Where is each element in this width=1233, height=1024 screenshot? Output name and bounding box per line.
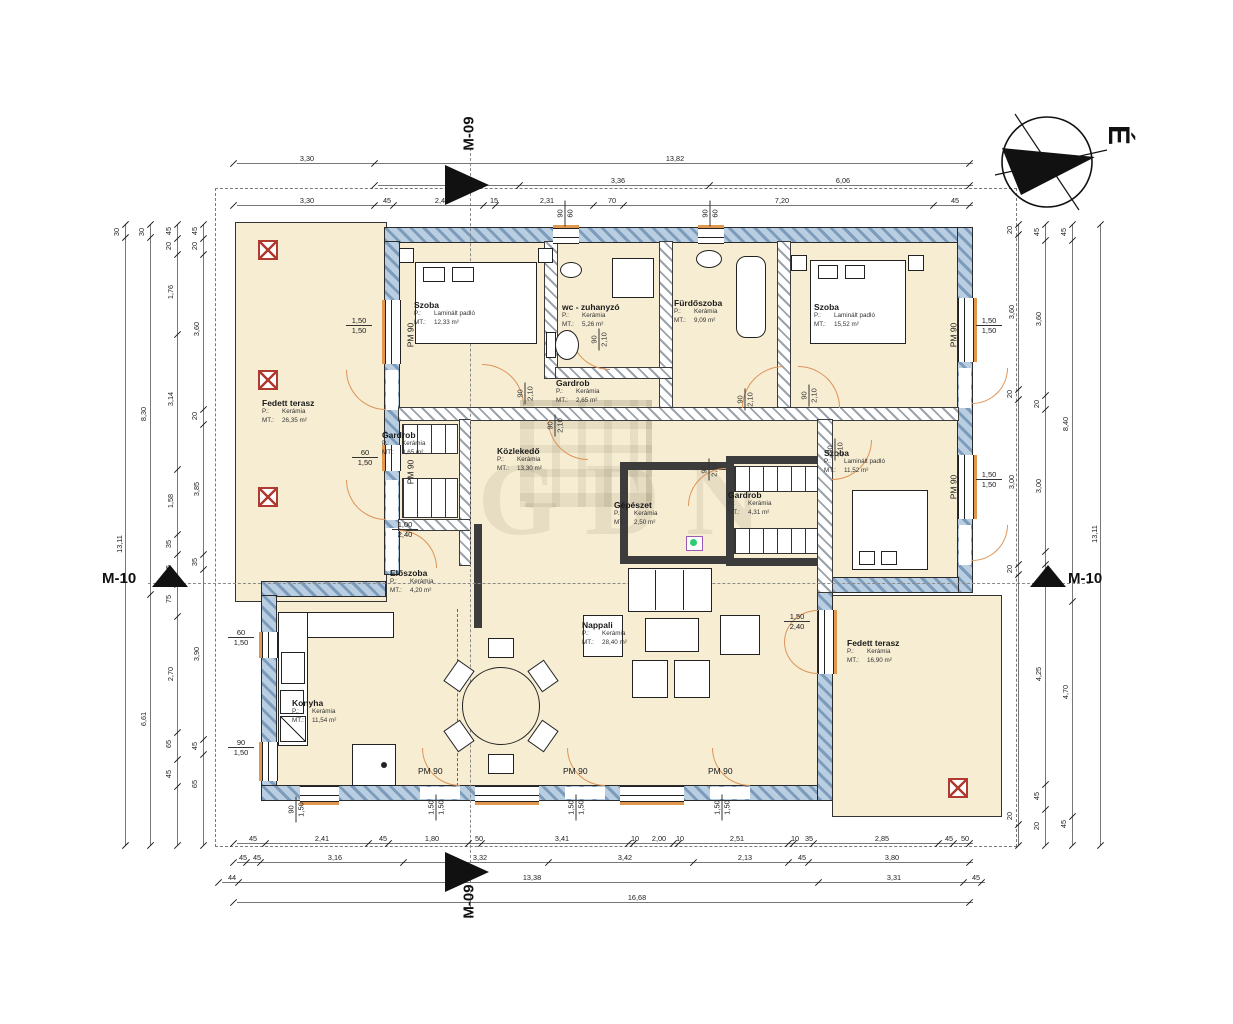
- column-symbol-1: [258, 240, 278, 260]
- dim-tick: [1042, 237, 1049, 244]
- dim-tick: [174, 783, 181, 790]
- window-north-1: [553, 228, 579, 244]
- dim-label: 3,31: [887, 873, 901, 882]
- dimension-chain: 4413,383,3145: [222, 882, 985, 883]
- door-gap-west-2: [386, 480, 398, 520]
- dim-label: 3,90: [192, 647, 201, 661]
- dim-label: 3,36: [611, 176, 625, 185]
- m09-label-top: M-09: [461, 116, 478, 150]
- dim-tick: [174, 613, 181, 620]
- dim-tick: [1069, 813, 1076, 820]
- dim-label: 45: [190, 227, 199, 235]
- dim-label: 20: [1032, 400, 1041, 408]
- dim-label: 16,68: [628, 893, 646, 902]
- room-label-konyha: Konyha P.:Kerámia MT.:11,54 m²: [292, 698, 388, 725]
- door-gap-south-1: [420, 787, 460, 799]
- dim-tick: [174, 466, 181, 473]
- dim-label: 45: [972, 873, 980, 882]
- m09-arrow-top: [443, 163, 491, 207]
- dim-tick: [174, 251, 181, 258]
- kitchen-stove: [352, 744, 396, 786]
- window-west-lower-1: [262, 632, 278, 658]
- dim-label: 3,60: [192, 322, 201, 336]
- dim-label: 45: [164, 770, 173, 778]
- equipment-icon: [686, 536, 703, 551]
- dim-label: 45: [1059, 820, 1068, 828]
- dim-tick: [1042, 392, 1049, 399]
- dim-tick: [200, 842, 207, 849]
- dim-tick: [1042, 842, 1049, 849]
- dim-tick: [200, 421, 207, 428]
- nightstand-ne-2: [908, 255, 924, 271]
- dim-label: 13,38: [523, 873, 541, 882]
- washbasin-wc: [560, 262, 582, 278]
- bed-ne-pillow-2: [845, 265, 865, 279]
- dim-label: 4,70: [1061, 685, 1070, 699]
- nightstand-nw-1: [399, 248, 414, 263]
- pouf-1: [632, 660, 668, 698]
- column-symbol-2: [258, 370, 278, 390]
- dim-tick: [257, 859, 264, 866]
- dim-tick: [230, 859, 237, 866]
- dim-label: 1,58: [166, 494, 175, 508]
- dimension-chain: 203,60203,002020: [1018, 224, 1019, 845]
- toilet-bowl: [555, 330, 579, 360]
- dim-label: 45: [1032, 228, 1041, 236]
- dim-tick: [174, 221, 181, 228]
- dimension-chain: 3,3013,82: [237, 163, 973, 164]
- dimension-chain: 3013,11: [125, 224, 126, 845]
- dim-label: 45: [239, 853, 247, 862]
- dim-label: 65: [164, 740, 173, 748]
- m10-label-right: M-10: [1068, 570, 1102, 587]
- dim-label: 35: [164, 540, 173, 548]
- dim-tick: [1069, 598, 1076, 605]
- dim-tick: [978, 879, 985, 886]
- room-label-terrace-right: Fedett terasz P.:Kerámia MT.:16,90 m²: [847, 638, 943, 665]
- dim-label: 65: [190, 780, 199, 788]
- room-label-nappali: Nappali P.:Kerámia MT.:28,40 m²: [582, 620, 642, 647]
- dimension-chain: 308,306,61: [150, 224, 151, 845]
- dim-tick: [1042, 548, 1049, 555]
- nightstand-nw-2: [538, 248, 553, 263]
- dining-chair-1: [488, 638, 514, 658]
- room-label-gepeszet: Gépészet P.:Kerámia MT.:2,50 m²: [614, 500, 710, 527]
- dim-tick: [1069, 237, 1076, 244]
- dim-label: 45: [798, 853, 806, 862]
- nappali-terrace-door: [818, 610, 834, 674]
- dim-label: 20: [1032, 822, 1041, 830]
- dim-label: 45: [253, 853, 261, 862]
- room-label-szoba-ne: Szoba P.:Laminált padló MT.:15,52 m²: [814, 302, 910, 329]
- dimension-chain: 453,60203,004,254520: [1045, 224, 1046, 845]
- shower: [612, 258, 654, 298]
- nightstand-ne-1: [791, 255, 807, 271]
- dim-tick: [230, 160, 237, 167]
- room-label-wc: wc - zuhanyzó P.:Kerámia MT.:5,26 m²: [562, 302, 658, 329]
- dim-label: 20: [164, 242, 173, 250]
- entry-door-gap: [386, 528, 398, 571]
- north-label: É: [1101, 125, 1135, 145]
- m10-arrow-left: [150, 563, 190, 589]
- dimension-chain: 45453,163,323,422,13453,80: [237, 862, 973, 863]
- dim-tick: [966, 160, 973, 167]
- room-label-gardrob-left: Gardrob P.:Kerámia MT.:3,65 m²: [382, 430, 478, 457]
- room-label-terrace-left: Fedett terasz P.:Kerámia MT.:26,35 m²: [262, 398, 358, 425]
- dim-tick: [122, 234, 129, 241]
- sofa-divider-2: [683, 570, 684, 610]
- room-label-kozlekedo: Közlekedő P.:Kerámia MT.:13,30 m²: [497, 446, 593, 473]
- door-gap-south-3: [710, 787, 750, 799]
- door-gap-east-1: [959, 368, 971, 408]
- m10-arrow-right: [1028, 563, 1068, 589]
- bed-se-pillow-2: [881, 551, 897, 565]
- window-south-3: [620, 786, 684, 802]
- m10-label-left: M-10: [102, 570, 136, 587]
- dim-label: 45: [1059, 228, 1068, 236]
- dim-tick: [690, 859, 697, 866]
- dimension-chain: 45201,763,141,583565752,706545: [177, 224, 178, 845]
- dim-tick: [215, 879, 222, 886]
- room-label-gardrob-top: Gardrob P.:Kerámia MT.:2,65 m²: [556, 378, 652, 405]
- dim-label: 3,14: [166, 392, 175, 406]
- dim-label: 3,80: [885, 853, 899, 862]
- dim-tick: [1042, 781, 1049, 788]
- dim-label: 8,30: [139, 407, 148, 421]
- dim-label: 20: [190, 242, 199, 250]
- dim-label: 3,85: [192, 482, 201, 496]
- dim-tick: [805, 859, 812, 866]
- dimension-chain: 16,68: [237, 902, 973, 903]
- dim-tick: [200, 406, 207, 413]
- dim-label: 3,00: [1034, 479, 1043, 493]
- dim-tick: [174, 842, 181, 849]
- dim-tick: [545, 859, 552, 866]
- dim-tick: [174, 551, 181, 558]
- dim-tick: [960, 879, 967, 886]
- dim-tick: [200, 736, 207, 743]
- dim-label: 45: [190, 742, 199, 750]
- bed-ne-pillow-1: [818, 265, 838, 279]
- room-label-eloszoba: Előszoba P.:Kerámia MT.:4,20 m²: [390, 568, 486, 595]
- room-label-kamra: Gardrob P.:Kerámia MT.:4,31 m²: [728, 490, 824, 517]
- dim-tick: [200, 251, 207, 258]
- section-line-m10: [148, 583, 1090, 584]
- window-east-2: [958, 455, 974, 519]
- column-symbol-3: [258, 487, 278, 507]
- dim-label: 30: [112, 228, 121, 236]
- wardrobe-grid-3: [734, 466, 818, 492]
- dim-tick: [966, 899, 973, 906]
- armchair-2: [720, 615, 760, 655]
- dim-tick: [966, 859, 973, 866]
- washbasin-furdo: [696, 250, 722, 268]
- room-name: Fedett terasz: [262, 398, 358, 408]
- dimension-chain: 458,404,7045: [1072, 224, 1073, 845]
- dim-tick: [230, 899, 237, 906]
- dim-label: 75: [164, 595, 173, 603]
- dining-table: [462, 667, 540, 745]
- dim-label: 4,25: [1034, 667, 1043, 681]
- pouf-2: [674, 660, 710, 698]
- dim-tick: [174, 729, 181, 736]
- dim-tick: [200, 221, 207, 228]
- dim-label: 13,11: [115, 535, 124, 553]
- dim-tick: [147, 221, 154, 228]
- dim-tick: [147, 842, 154, 849]
- dim-label: 45: [164, 227, 173, 235]
- dim-tick: [371, 160, 378, 167]
- dim-tick: [174, 531, 181, 538]
- dim-label: 3,16: [328, 853, 342, 862]
- door-gap-south-2: [565, 787, 605, 799]
- door-gap-west-1: [386, 370, 398, 410]
- wardrobe-grid-2: [402, 478, 458, 518]
- dim-tick: [400, 859, 407, 866]
- dim-tick: [1097, 842, 1104, 849]
- dim-tick: [174, 331, 181, 338]
- dim-tick: [815, 879, 822, 886]
- wardrobe-grid-4: [734, 528, 818, 554]
- dim-label: 45: [1032, 792, 1041, 800]
- m09-label-bottom: M-09: [461, 884, 478, 918]
- dim-tick: [1042, 806, 1049, 813]
- dim-label: 3,60: [1034, 312, 1043, 326]
- dim-label: 13,82: [666, 154, 684, 163]
- dim-label: 6,06: [836, 176, 850, 185]
- room-label-szoba-nw: Szoba P.:Laminált padló MT.:12,33 m²: [414, 300, 510, 327]
- bed-se-pillow-1: [859, 551, 875, 565]
- dim-tick: [243, 859, 250, 866]
- floor-plan-canvas: GDN: [0, 0, 1233, 1024]
- dim-label: 1,76: [166, 285, 175, 299]
- dim-label: 2,13: [738, 853, 752, 862]
- dim-tick: [785, 859, 792, 866]
- dimension-chain: 13,11: [1100, 224, 1101, 845]
- dim-label: 3,30: [300, 154, 314, 163]
- window-west-1: [385, 300, 401, 364]
- dim-label: 13,11: [1090, 525, 1099, 543]
- dim-label: 8,40: [1061, 417, 1070, 431]
- dim-tick: [122, 221, 129, 228]
- dim-tick: [200, 751, 207, 758]
- dim-tick: [174, 756, 181, 763]
- kitchen-stove-knob: [381, 762, 387, 768]
- dim-tick: [174, 235, 181, 242]
- dim-label: 20: [190, 412, 199, 420]
- room-label-furdoszoba: Fürdőszoba P.:Kerámia MT.:9,09 m²: [674, 298, 770, 325]
- dim-label: 30: [137, 228, 146, 236]
- dim-tick: [147, 234, 154, 241]
- window-south-1: [300, 786, 339, 802]
- room-label-szoba-se: Szoba P.:Laminált padló MT.:11,52 m²: [824, 448, 920, 475]
- dim-label: 3,42: [618, 853, 632, 862]
- window-east-1: [958, 298, 974, 362]
- dining-chair-2: [488, 754, 514, 774]
- dim-tick: [1069, 842, 1076, 849]
- dim-label: 44: [228, 873, 236, 882]
- window-west-lower-2: [262, 742, 278, 781]
- dim-tick: [200, 551, 207, 558]
- bed-nw-pillow-2: [452, 267, 474, 282]
- bed-nw-pillow-1: [423, 267, 445, 282]
- dim-tick: [235, 879, 242, 886]
- window-south-2: [475, 786, 539, 802]
- dim-label: 2,70: [166, 667, 175, 681]
- dim-tick: [200, 566, 207, 573]
- sofa: [628, 568, 712, 612]
- dim-tick: [122, 842, 129, 849]
- dim-tick: [200, 235, 207, 242]
- dim-tick: [147, 591, 154, 598]
- dim-label: 6,61: [139, 712, 148, 726]
- north-arrow: [985, 100, 1135, 225]
- dimension-chain: 45203,60203,85353,904565: [203, 224, 204, 845]
- dim-tick: [1042, 406, 1049, 413]
- door-gap-east-2: [959, 525, 971, 565]
- column-symbol-4: [948, 778, 968, 798]
- kitchen-sink: [281, 652, 305, 684]
- sofa-divider-1: [655, 570, 656, 610]
- coffee-table: [645, 618, 699, 652]
- bathtub: [736, 256, 766, 338]
- window-north-2: [698, 228, 724, 244]
- dim-label: 35: [190, 558, 199, 566]
